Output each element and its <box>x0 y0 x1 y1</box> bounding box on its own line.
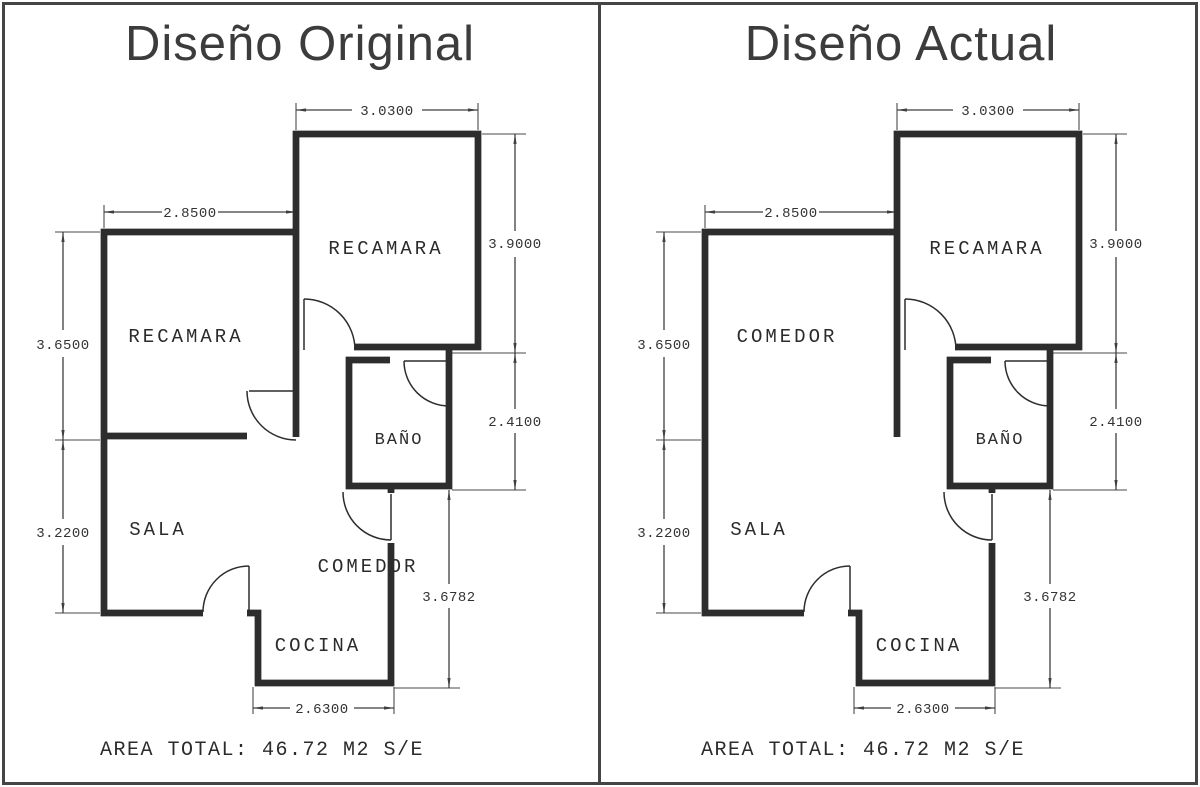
dim-right-upper: 3.9000 <box>1089 237 1142 253</box>
area-total-text: AREA TOTAL: 46.72 M2 S/E <box>100 739 424 762</box>
room-labels: RECAMARA COMEDOR SALA BAÑO COCINA <box>730 238 1044 657</box>
area-total-text: AREA TOTAL: 46.72 M2 S/E <box>701 739 1025 762</box>
dim-left-width: 2.8500 <box>764 206 817 222</box>
dim-right-mid: 2.4100 <box>1089 415 1142 431</box>
dim-right-upper: 3.9000 <box>488 237 541 253</box>
room-label-left: COMEDOR <box>737 326 838 348</box>
panel-divider <box>598 2 601 782</box>
room-label-sala: SALA <box>730 519 788 541</box>
dimension-values: 3.0300 2.8500 3.6500 3.2200 3.9000 2.410… <box>36 104 541 718</box>
room-label-top: RECAMARA <box>328 238 443 260</box>
dimension-values: 3.0300 2.8500 3.6500 3.2200 3.9000 2.410… <box>637 104 1142 718</box>
room-label-sala: SALA <box>129 519 187 541</box>
dim-left-lower: 3.2200 <box>36 526 89 542</box>
panel-title-original: Diseño Original <box>0 16 600 72</box>
room-label-left: RECAMARA <box>128 326 243 348</box>
room-label-comedor: COMEDOR <box>318 556 419 578</box>
panel-title-actual: Diseño Actual <box>601 16 1200 72</box>
panel-original: Diseño Original <box>0 0 600 787</box>
room-label-top: RECAMARA <box>929 238 1044 260</box>
room-label-bano: BAÑO <box>375 430 424 450</box>
dim-right-lower: 3.6782 <box>1023 590 1076 606</box>
dim-right-mid: 2.4100 <box>488 415 541 431</box>
extension-lines <box>55 103 526 714</box>
extension-lines <box>656 103 1127 714</box>
dim-bottom-width: 2.6300 <box>896 702 949 718</box>
room-label-bano: BAÑO <box>976 430 1025 450</box>
dim-top-width: 3.0300 <box>360 104 413 120</box>
floor-plan-original: RECAMARA RECAMARA SALA BAÑO COMEDOR COCI… <box>0 87 600 787</box>
floor-plan-actual: RECAMARA COMEDOR SALA BAÑO COCINA 3.0300… <box>601 87 1200 787</box>
room-label-cocina: COCINA <box>275 635 361 657</box>
dim-bottom-width: 2.6300 <box>295 702 348 718</box>
dim-left-width: 2.8500 <box>163 206 216 222</box>
floor-plan-comparison: Diseño Original <box>0 0 1200 787</box>
room-labels: RECAMARA RECAMARA SALA BAÑO COMEDOR COCI… <box>128 238 443 657</box>
dim-left-upper: 3.6500 <box>36 338 89 354</box>
panel-actual: Diseño Actual <box>601 0 1200 787</box>
dim-top-width: 3.0300 <box>961 104 1014 120</box>
dim-right-lower: 3.6782 <box>422 590 475 606</box>
room-label-cocina: COCINA <box>876 635 962 657</box>
dim-left-upper: 3.6500 <box>637 338 690 354</box>
dim-left-lower: 3.2200 <box>637 526 690 542</box>
